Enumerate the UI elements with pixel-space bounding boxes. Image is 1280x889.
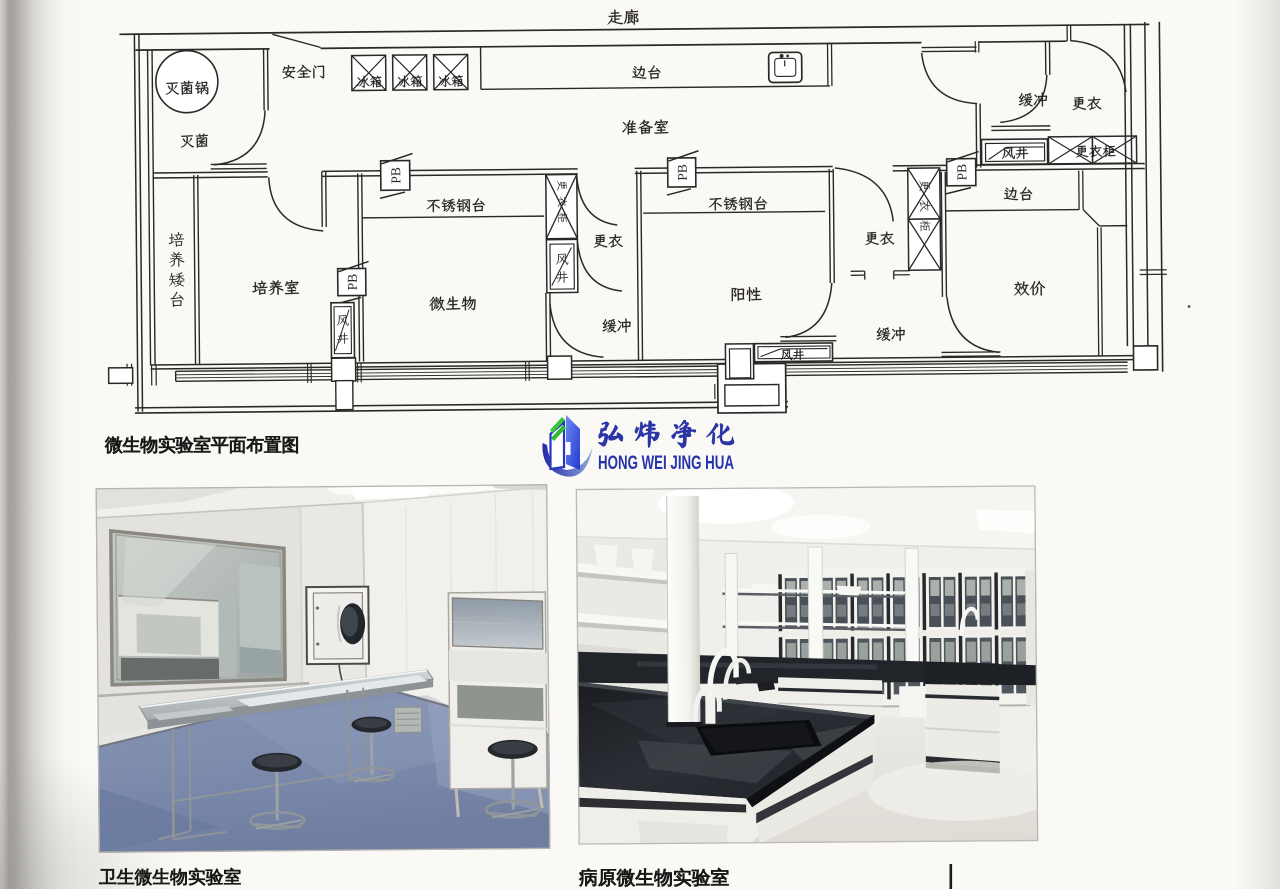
svg-text:HONG WEI JING HUA: HONG WEI JING HUA <box>598 452 734 474</box>
